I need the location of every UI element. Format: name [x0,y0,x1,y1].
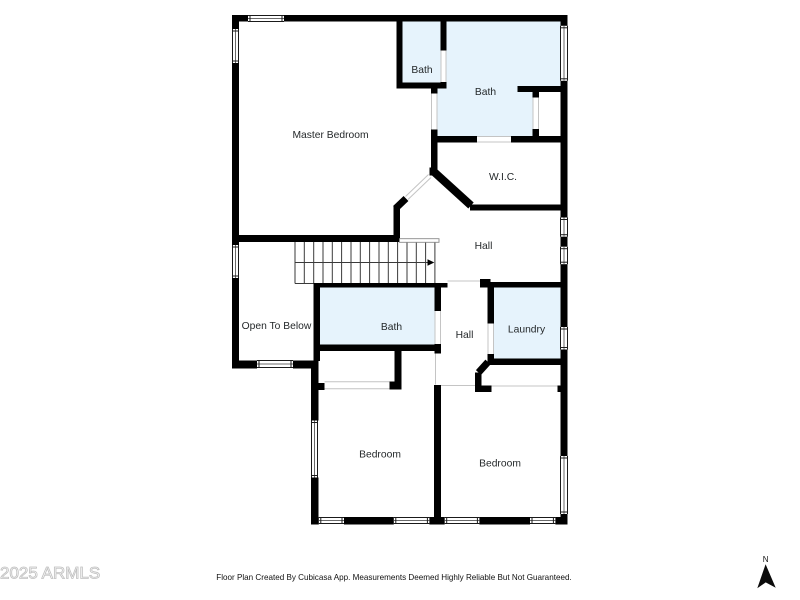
svg-text:W.I.C.: W.I.C. [489,172,517,183]
svg-text:N: N [763,555,769,564]
svg-text:Floor Plan Created By Cubicasa: Floor Plan Created By Cubicasa App. Meas… [216,573,571,582]
svg-text:Open To Below: Open To Below [242,321,312,332]
svg-text:Bath: Bath [475,87,496,98]
svg-text:Bedroom: Bedroom [479,459,521,470]
svg-text:Hall: Hall [456,330,474,341]
svg-text:Master Bedroom: Master Bedroom [292,130,368,141]
svg-text:Laundry: Laundry [508,325,546,336]
svg-text:Bedroom: Bedroom [359,449,401,460]
svg-text:Bath: Bath [411,65,432,76]
svg-text:2025 ARMLS: 2025 ARMLS [0,564,100,583]
svg-text:Hall: Hall [475,241,493,252]
svg-text:Bath: Bath [381,322,402,333]
